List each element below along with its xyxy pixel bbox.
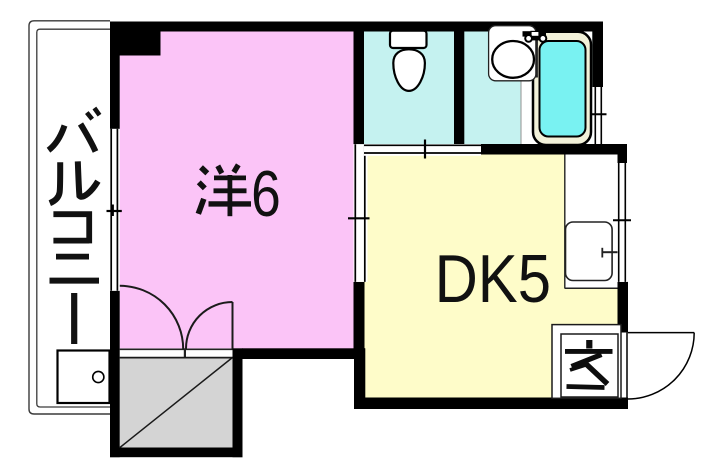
svg-text:6: 6 [251,157,281,230]
svg-text:DK5: DK5 [435,240,551,316]
